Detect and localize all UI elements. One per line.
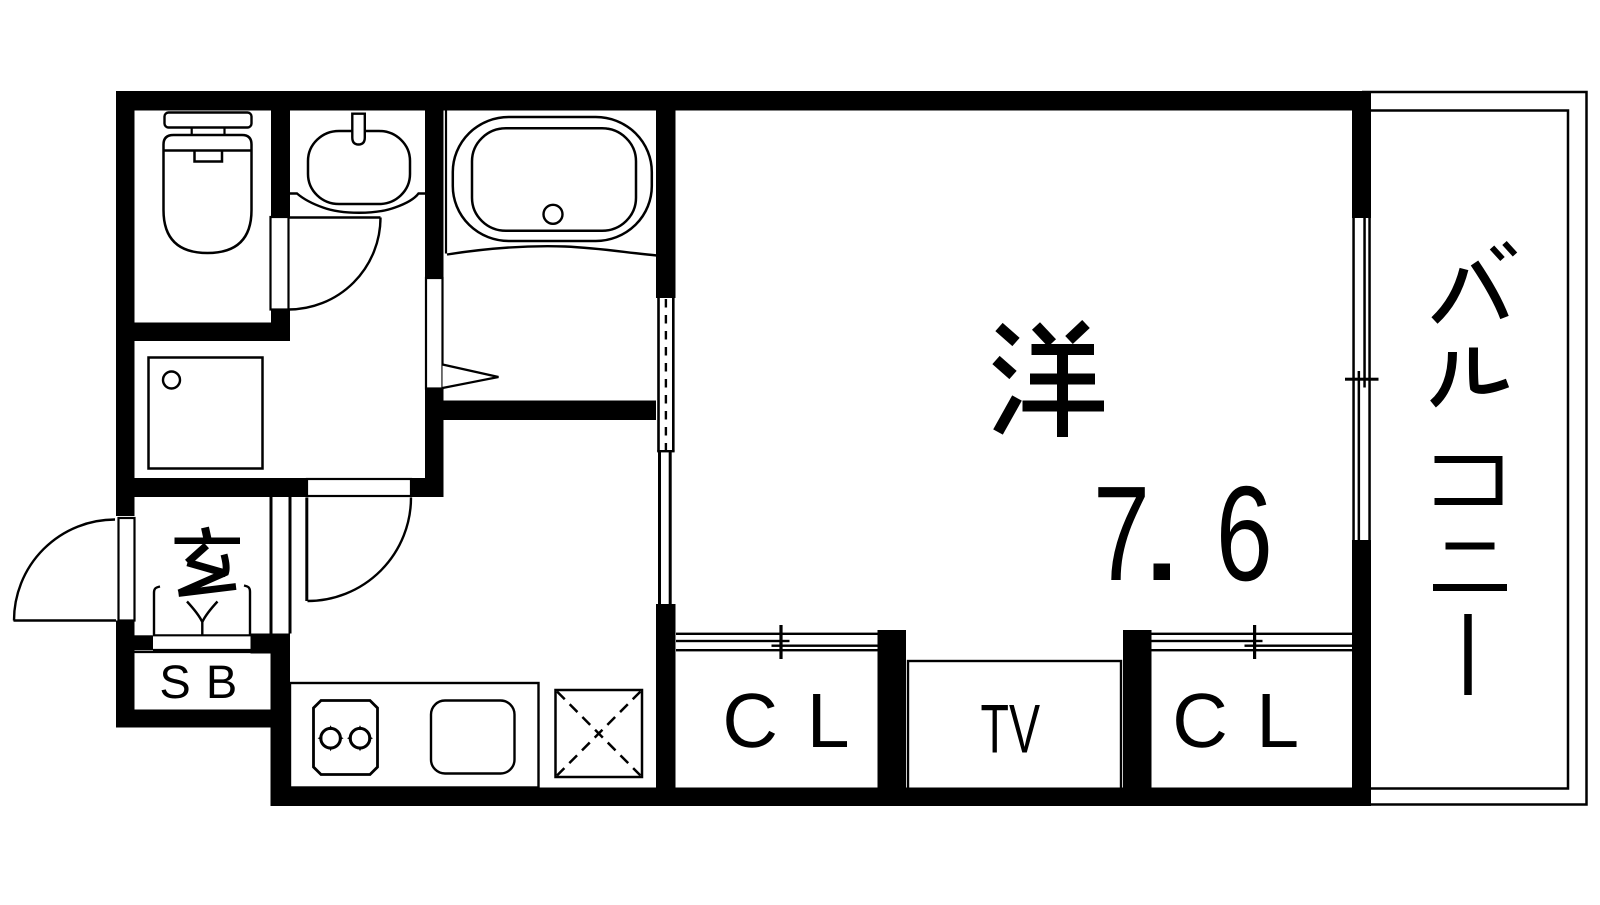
svg-text:C: C xyxy=(1172,678,1228,764)
svg-text:B: B xyxy=(206,656,237,709)
svg-text:L: L xyxy=(807,678,850,764)
svg-text:S: S xyxy=(159,656,190,709)
svg-text:7: 7 xyxy=(1093,458,1150,609)
svg-text:TV: TV xyxy=(981,691,1041,768)
svg-text:6: 6 xyxy=(1216,458,1273,609)
svg-text:L: L xyxy=(1256,678,1299,764)
svg-text:C: C xyxy=(722,678,778,764)
